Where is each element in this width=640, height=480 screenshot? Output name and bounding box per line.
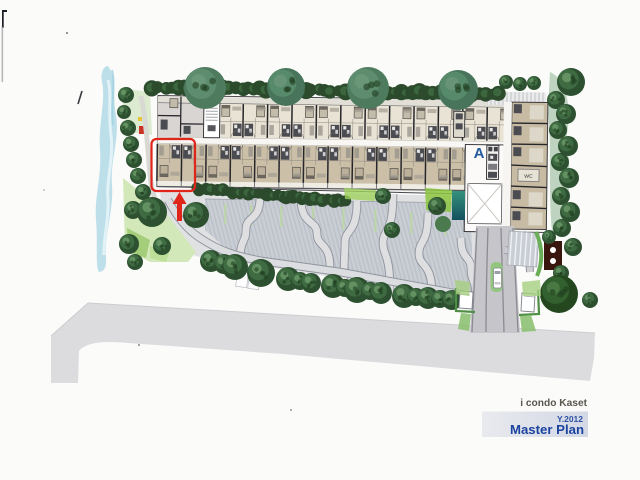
svg-text:A: A: [474, 145, 485, 162]
svg-text:WC: WC: [524, 174, 533, 180]
svg-text:i condo Kaset: i condo Kaset: [520, 398, 587, 409]
svg-text:Master Plan: Master Plan: [510, 422, 584, 437]
